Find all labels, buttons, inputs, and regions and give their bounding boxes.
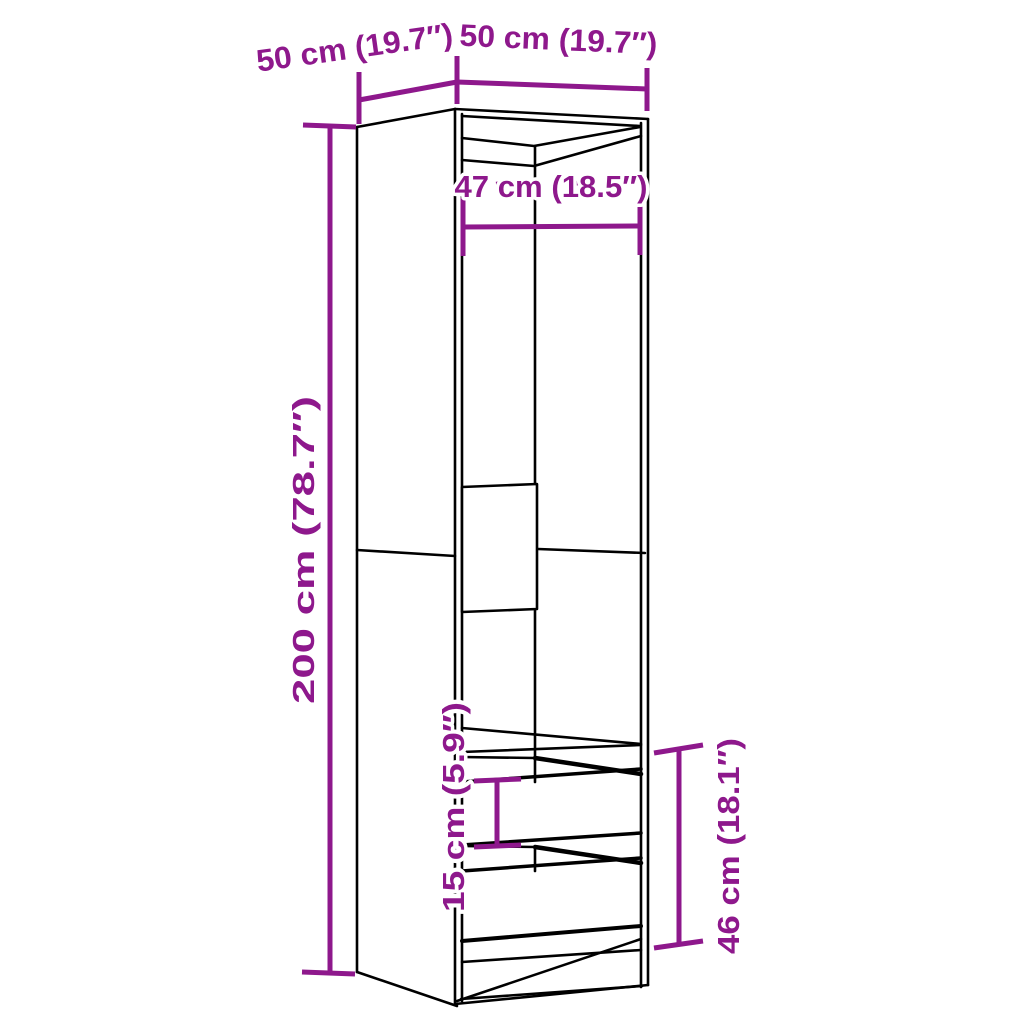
drawer1-gap-line xyxy=(462,757,535,758)
dimension-width-top-right xyxy=(457,56,647,111)
product-dimension-image: 50 cm (19.7″) 50 cm (19.7″) 47 cm (18.5″… xyxy=(0,0,1024,1024)
middle-back-panel xyxy=(462,484,537,612)
label-drawer-section-height: 46 cm (18.1″) xyxy=(711,738,746,954)
tick xyxy=(474,779,521,781)
label-depth-top-left: 50 cm (19.7″) xyxy=(254,16,455,78)
tick xyxy=(654,941,703,948)
bottom-front-inner-edge xyxy=(461,986,642,999)
tick xyxy=(303,125,356,127)
label-width-top-right: 50 cm (19.7″) xyxy=(459,18,658,62)
shelf-back-edge xyxy=(462,728,641,744)
plinth-top-edge xyxy=(462,950,641,962)
drawer2-top-edge xyxy=(462,858,641,871)
dimension-line xyxy=(359,82,457,100)
label-total-height: 200 cm (78.7″) xyxy=(286,396,321,704)
dimension-line xyxy=(463,226,640,227)
left-side-top-edge xyxy=(357,109,455,127)
mid-joint-interior xyxy=(538,549,645,553)
tick xyxy=(302,972,355,974)
dimension-line xyxy=(457,82,647,89)
shelf-front-edge xyxy=(462,745,641,752)
mid-joint-left-face xyxy=(357,550,455,556)
drawer2-bottom-edge xyxy=(462,926,641,941)
label-drawer-front-height: 15 cm (5.9″) xyxy=(436,702,471,912)
wardrobe-drawing xyxy=(357,109,648,1006)
left-side-bottom-edge xyxy=(357,972,457,1006)
wardrobe-dimension-diagram: 50 cm (19.7″) 50 cm (19.7″) 47 cm (18.5″… xyxy=(0,0,1024,1024)
drawer1-bottom-edge xyxy=(462,833,641,845)
label-inner-width: 47 cm (18.5″) xyxy=(455,169,648,204)
dimension-depth-top-left xyxy=(359,72,457,124)
dimension-drawer-section-height xyxy=(654,745,703,948)
tick xyxy=(474,845,521,847)
